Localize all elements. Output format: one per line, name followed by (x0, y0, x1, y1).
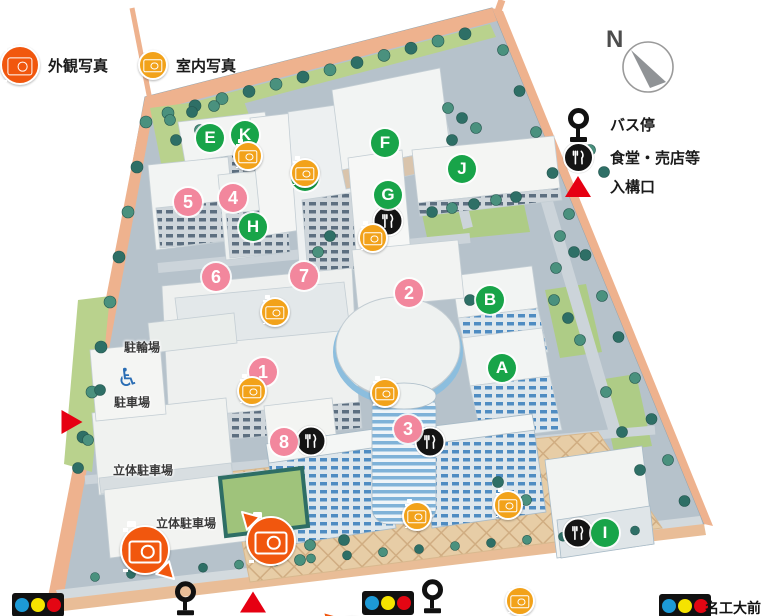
interior-photo-camera-icon[interactable] (402, 501, 432, 531)
camera-direction-arrow (315, 604, 343, 616)
interior-photo-camera-icon[interactable] (370, 378, 400, 408)
building-letter-badge[interactable]: B (476, 286, 504, 314)
building-number-badge[interactable]: 5 (174, 188, 202, 216)
interior-photo-camera-icon[interactable] (260, 297, 290, 327)
area-label: 駐車場 (114, 394, 150, 411)
traffic-light-icon (659, 594, 711, 616)
interior-photo-camera-icon[interactable] (505, 586, 535, 616)
area-label: 立体駐車場 (113, 462, 173, 479)
building-letter-badge[interactable]: E (196, 124, 224, 152)
building-letter-badge[interactable]: A (488, 354, 516, 382)
exterior-photo-camera-icon[interactable] (246, 516, 296, 566)
interior-photo-camera-icon[interactable] (237, 376, 267, 406)
building-number-badge[interactable]: 8 (270, 428, 298, 456)
traffic-light-icon (362, 591, 414, 615)
gate-entrance-icon (240, 592, 266, 613)
bus-stop-icon (171, 581, 199, 615)
interior-photo-camera-icon[interactable] (358, 223, 388, 253)
area-label: 駐輪場 (124, 339, 160, 356)
camera-direction-arrow (234, 504, 262, 532)
exterior-photo-camera-icon[interactable] (120, 525, 170, 575)
building-letter-badge[interactable]: I (591, 519, 619, 547)
interior-photo-camera-icon[interactable] (493, 490, 523, 520)
interior-photo-camera-icon[interactable] (233, 141, 263, 171)
building-number-badge[interactable]: 6 (202, 263, 230, 291)
interior-photo-camera-icon[interactable] (290, 158, 320, 188)
campus-map-page: 外観写真 室内写真 N バス停 食堂・売店等 入構口 (0, 0, 767, 616)
building-number-badge[interactable]: 4 (219, 184, 247, 212)
building-number-badge[interactable]: 2 (395, 279, 423, 307)
canteen-icon (563, 518, 594, 549)
bus-stop-icon (418, 579, 446, 613)
building-number-badge[interactable]: 3 (394, 415, 422, 443)
station-name-label: 名工大前 (705, 598, 761, 616)
area-label: 立体駐車場 (156, 515, 216, 532)
accessible-parking-icon: ♿ (117, 363, 139, 393)
map-markers-layer: 駐輪場駐車場立体駐車場立体駐車場♿12345678ABDEFGHIJK (0, 0, 767, 616)
building-letter-badge[interactable]: H (239, 213, 267, 241)
building-letter-badge[interactable]: F (371, 129, 399, 157)
traffic-light-icon (12, 593, 64, 616)
gate-entrance-icon (62, 410, 83, 434)
building-letter-badge[interactable]: J (448, 155, 476, 183)
building-number-badge[interactable]: 7 (290, 262, 318, 290)
canteen-icon (296, 426, 327, 457)
building-letter-badge[interactable]: G (374, 181, 402, 209)
